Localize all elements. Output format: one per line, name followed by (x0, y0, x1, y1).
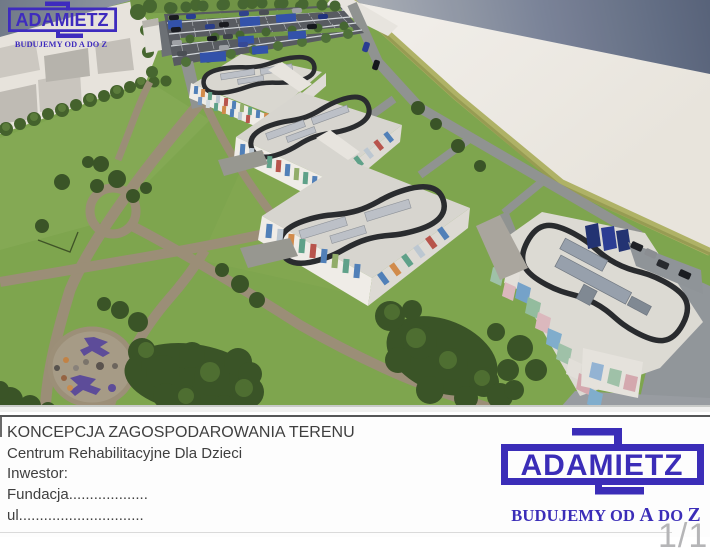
svg-text:ADAMIETZ: ADAMIETZ (16, 10, 109, 30)
svg-text:ADAMIETZ: ADAMIETZ (521, 449, 684, 482)
svg-text:BUDUJEMY OD A DO Z: BUDUJEMY OD A DO Z (15, 40, 108, 49)
svg-text:BUDUJEMY OD A DO Z: BUDUJEMY OD A DO Z (511, 505, 701, 526)
